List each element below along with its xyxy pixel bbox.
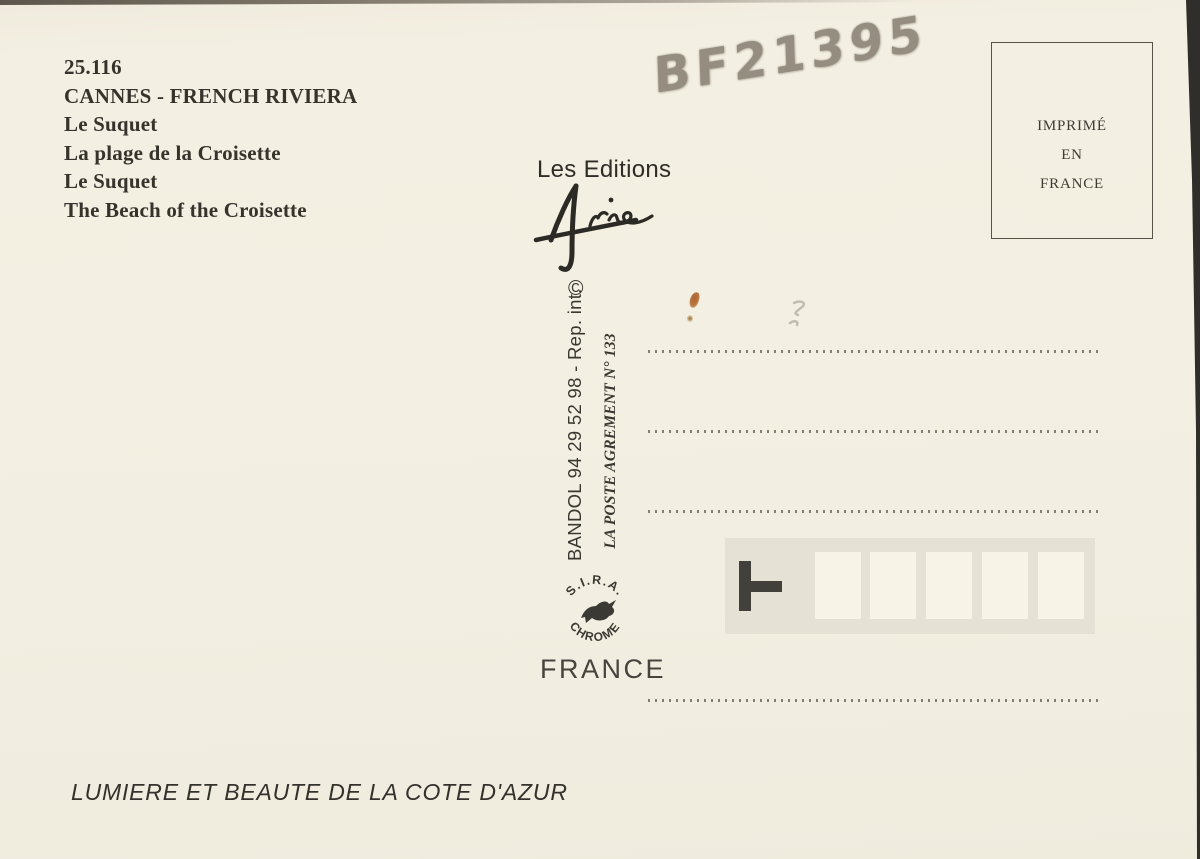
stamp-box-line2: EN [992,141,1152,170]
handwritten-inventory-code: BF21395 [653,4,932,105]
caption-block: 25.116 CANNES - FRENCH RIVIERA Le Suquet… [64,53,357,224]
top-scan-edge [0,0,920,5]
caption-line: Le Suquet [64,167,357,196]
address-dotted-line-4 [648,699,1103,702]
address-dotted-line-3 [648,510,1103,513]
seal-figure [581,600,616,623]
rust-stain [687,315,693,322]
postal-registration-mark [751,581,782,592]
address-dotted-line-1 [648,350,1103,353]
spine-contact-text: BANDOL 94 29 52 98 - Rep. int. [564,311,586,561]
svg-text:S.I.R.A.: S.I.R.A. [563,573,627,599]
rust-stain [688,291,701,309]
sira-chrome-seal: S.I.R.A. CHROME [551,568,639,656]
address-dotted-line-2 [648,430,1103,433]
postal-code-cell [1038,552,1084,619]
pencil-smudge [784,297,814,331]
country-label: FRANCE [540,654,665,685]
postcard-scan: 25.116 CANNES - FRENCH RIVIERA Le Suquet… [0,0,1200,859]
caption-line: La plage de la Croisette [64,139,357,168]
postal-registration-mark [739,561,751,611]
spine-agreement-text: LA POSTE AGREMENT N° 133 [602,326,622,556]
reference-number: 25.116 [64,53,357,82]
postal-code-cell [870,552,916,619]
seal-text-bottom: CHROME [567,619,623,644]
postal-code-cell [926,552,972,619]
stamp-box-line3: FRANCE [992,170,1152,199]
right-scan-edge [1180,0,1200,859]
postal-code-band [725,538,1095,634]
card-title: CANNES - FRENCH RIVIERA [64,82,357,111]
aris-signature-logo [530,178,660,280]
caption-line: Le Suquet [64,110,357,139]
seal-text-top: S.I.R.A. [563,573,627,599]
stamp-box: IMPRIMÉ EN FRANCE [991,42,1153,239]
svg-text:CHROME: CHROME [567,619,623,644]
postal-code-cell [815,552,861,619]
stamp-box-line1: IMPRIMÉ [992,112,1152,141]
caption-line: The Beach of the Croisette [64,196,357,225]
postal-code-cell [982,552,1028,619]
footer-slogan: LUMIERE ET BEAUTE DE LA COTE D'AZUR [71,779,568,806]
